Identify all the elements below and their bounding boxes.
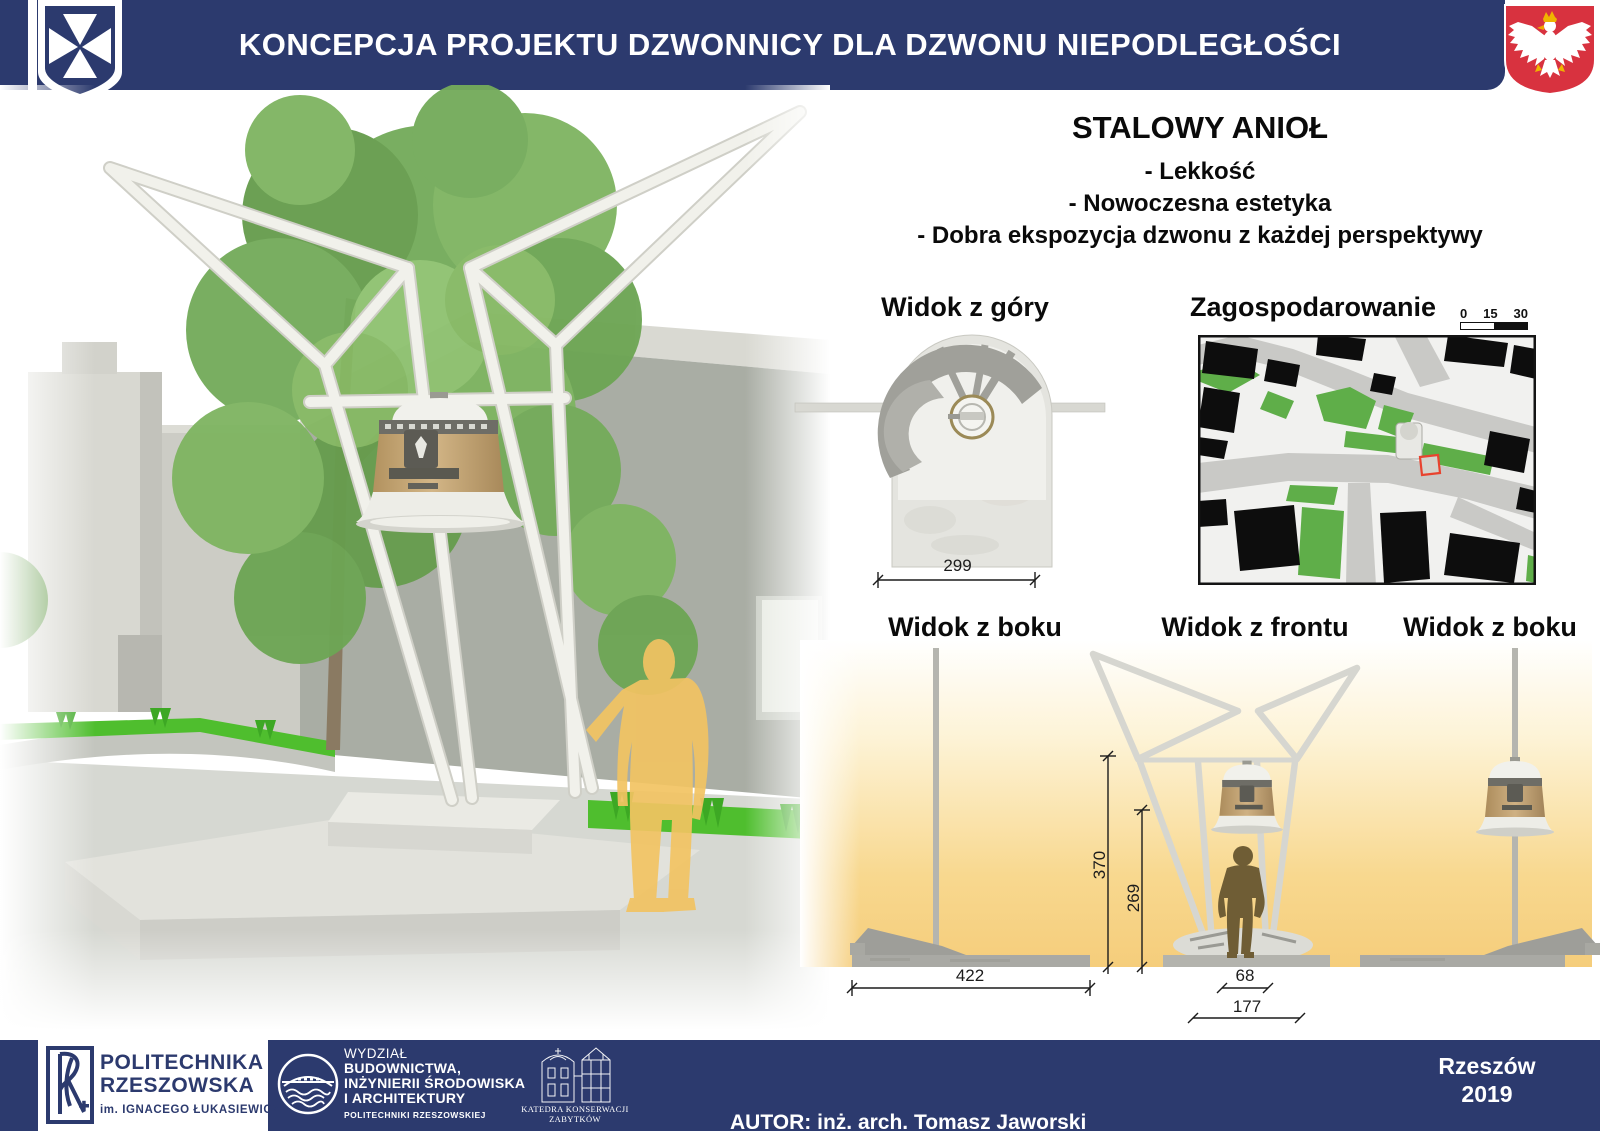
faculty-line3: INŻYNIERII ŚRODOWISKA	[344, 1076, 525, 1091]
concept-bullet-3: - Dobra ekspozycja dzwonu z każdej persp…	[820, 222, 1580, 250]
university-logo-icon	[46, 1046, 94, 1124]
dim-base-width: 68	[1222, 966, 1268, 986]
concept-title: STALOWY ANIOŁ	[820, 110, 1580, 146]
fade-bottom	[0, 930, 830, 1030]
render-3d-visualization	[0, 85, 830, 1030]
scale-tick-0: 0	[1460, 306, 1467, 321]
faculty-name: WYDZIAŁ BUDOWNICTWA, INŻYNIERII ŚRODOWIS…	[344, 1046, 525, 1123]
dim-top-width: 299	[920, 556, 995, 576]
site-plan-label: Zagospodarowanie	[1178, 292, 1448, 323]
place-city: Rzeszów	[1412, 1052, 1562, 1080]
credits: AUTOR: inż. arch. Tomasz Jaworski PROMOT…	[730, 1053, 1241, 1131]
top-view-drawing	[790, 280, 1120, 600]
university-line2: RZESZOWSKA	[100, 1074, 289, 1097]
scale-tick-30: 30	[1514, 306, 1528, 321]
department-name: KATEDRA KONSERWACJI ZABYTKÓW	[510, 1104, 640, 1124]
author-line: AUTOR: inż. arch. Tomasz Jaworski	[730, 1109, 1241, 1131]
footer-left-accent	[0, 1040, 38, 1131]
concept-bullet-2: - Nowoczesna estetyka	[820, 190, 1580, 218]
fade-left	[0, 85, 95, 1030]
scale-tick-15: 15	[1483, 306, 1497, 321]
university-line1: POLITECHNIKA	[100, 1051, 289, 1074]
dim-height-total: 370	[1090, 835, 1110, 895]
university-line3: im. IGNACEGO ŁUKASIEWICZA	[100, 1099, 289, 1122]
dim-base-depth: 177	[1212, 997, 1282, 1017]
dim-side-base: 422	[935, 966, 1005, 986]
map-scale-bar: 0 15 30	[1460, 306, 1528, 330]
poster-board: KONCEPCJA PROJEKTU DZWONNICY DLA DZWONU …	[0, 0, 1600, 1131]
faculty-line4: I ARCHITEKTURY	[344, 1091, 525, 1106]
department-line2: ZABYTKÓW	[510, 1114, 640, 1124]
faculty-line5: POLITECHNIKI RZESZOWSKIEJ	[344, 1108, 525, 1123]
university-name: POLITECHNIKA RZESZOWSKA im. IGNACEGO ŁUK…	[100, 1051, 289, 1122]
faculty-line2: BUDOWNICTWA,	[344, 1061, 525, 1076]
place-year: Rzeszów 2019	[1412, 1052, 1562, 1108]
department-logo-icon	[528, 1046, 624, 1104]
poster-title: KONCEPCJA PROJEKTU DZWONNICY DLA DZWONU …	[140, 0, 1440, 90]
concept-bullet-1: - Lekkość	[820, 158, 1580, 186]
eagle-emblem-icon	[1502, 2, 1598, 97]
header-left-accent	[0, 0, 28, 90]
department-line1: KATEDRA KONSERWACJI	[510, 1104, 640, 1114]
place-date: 2019	[1412, 1080, 1562, 1108]
elevation-views-drawing	[790, 600, 1600, 1031]
site-plan-map	[1198, 335, 1536, 585]
faculty-line1: WYDZIAŁ	[344, 1046, 525, 1061]
dim-height-bell: 269	[1124, 868, 1144, 928]
faculty-logo-icon	[276, 1052, 340, 1116]
map-location-marker	[1420, 455, 1440, 475]
